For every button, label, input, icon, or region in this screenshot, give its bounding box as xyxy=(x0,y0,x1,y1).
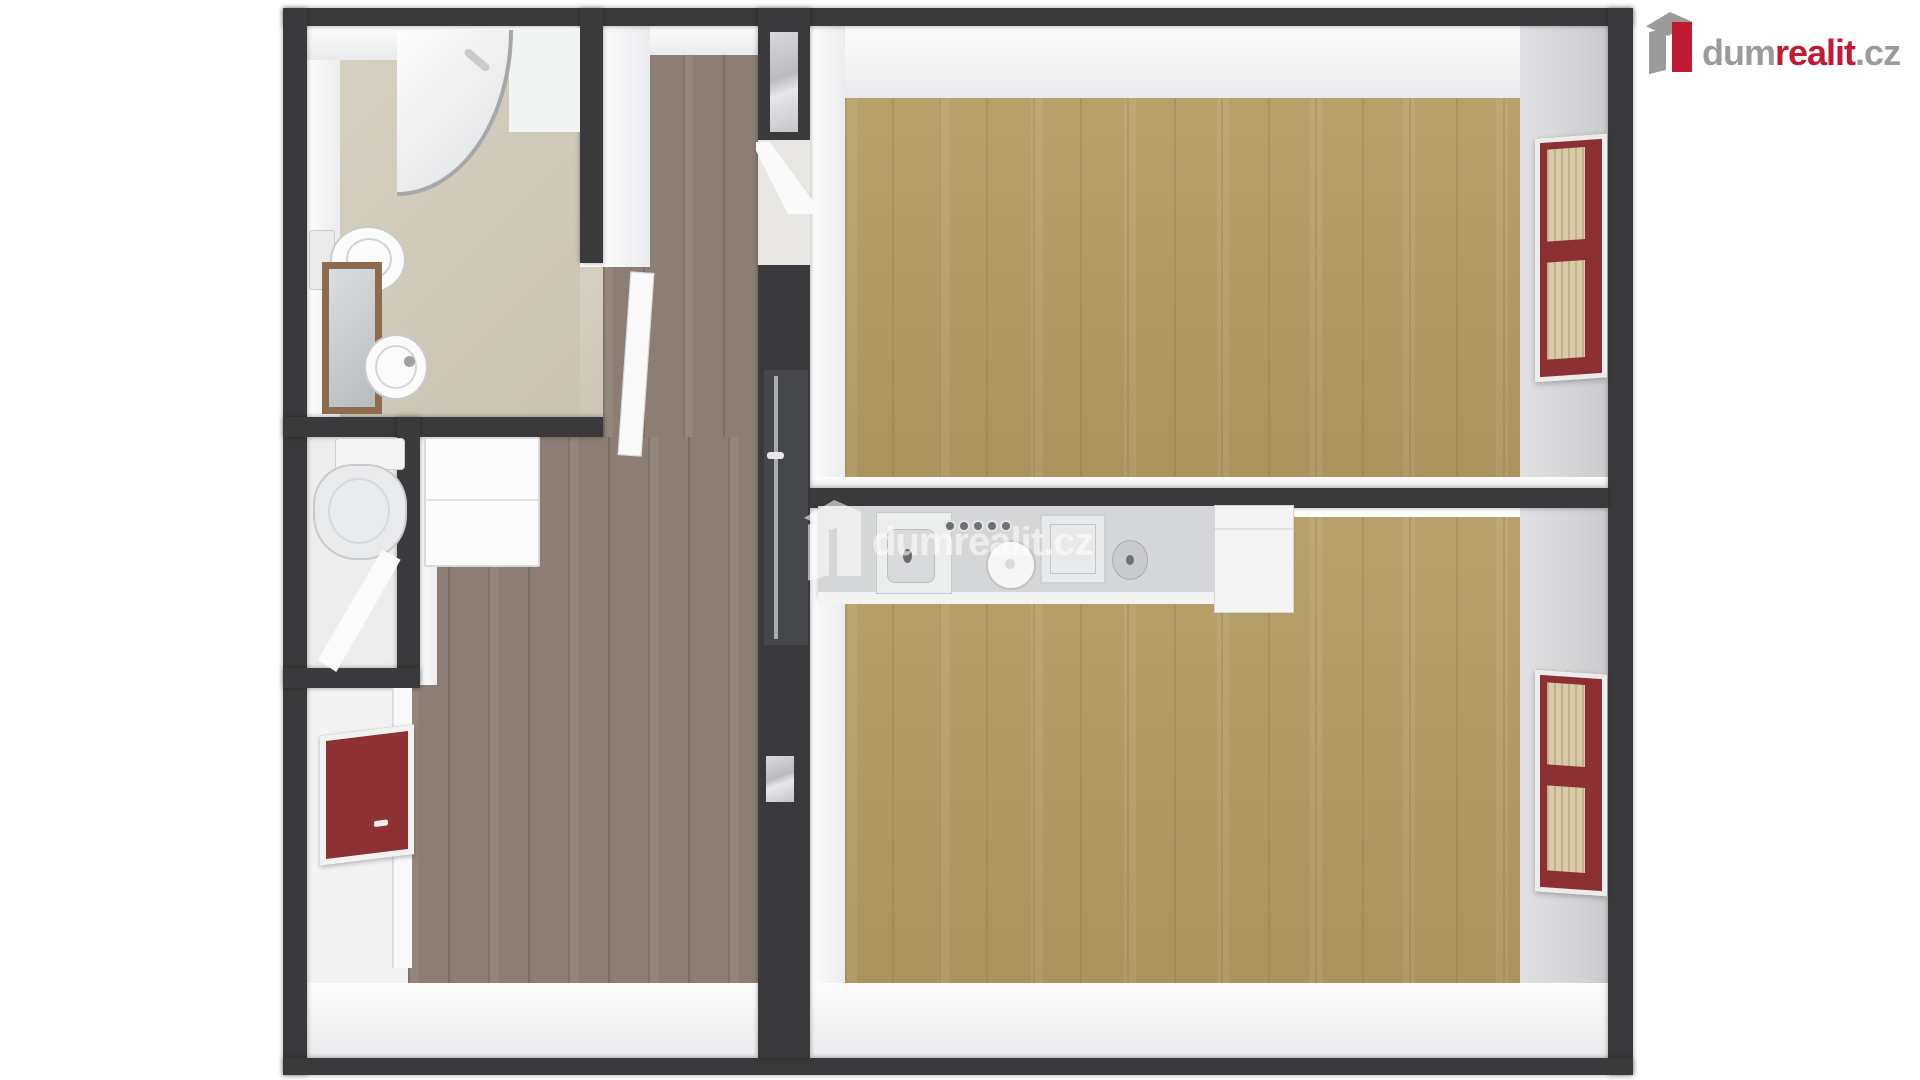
entry-window-latch xyxy=(374,819,388,827)
logo-building-icon xyxy=(1644,10,1698,74)
living-room-floor xyxy=(845,98,1520,477)
bedroom-window xyxy=(1535,669,1607,896)
wc-south-wall xyxy=(283,668,420,688)
wood-framed-mirror xyxy=(322,262,382,414)
glazed-door-glass-strip xyxy=(774,376,778,639)
watermark-icon-left-slab xyxy=(808,519,829,580)
outer-wall-top xyxy=(283,8,1633,26)
watermark-icon-right-slab xyxy=(837,512,861,576)
outer-wall-bottom xyxy=(283,1058,1633,1075)
logo-text-dum: dum xyxy=(1702,32,1775,73)
logo-icon-right-slab xyxy=(1672,22,1692,72)
bathroom-south-wall xyxy=(283,417,603,437)
outer-wall-right xyxy=(1608,8,1633,1075)
logo-text-cz: .cz xyxy=(1855,32,1900,73)
fridge xyxy=(1214,505,1294,613)
washbasin-inner xyxy=(375,345,417,389)
bottom-wall-face xyxy=(307,983,1608,1058)
washbasin-faucet xyxy=(404,356,415,367)
watermark-text: dumrealit.cz xyxy=(872,520,1093,565)
wc-toilet-bowl xyxy=(313,464,407,560)
logo-text-realit: realit xyxy=(1775,32,1855,73)
logo-text: dumrealit.cz xyxy=(1702,32,1900,74)
outer-wall-left xyxy=(283,8,307,1075)
logo-icon-left-slab xyxy=(1649,28,1666,74)
living-room-top-wall-face xyxy=(845,26,1520,98)
shower-alcove xyxy=(509,28,580,132)
bathroom-east-wall xyxy=(580,8,603,263)
living-room-window xyxy=(1535,133,1607,382)
hall-cabinet-divider-line xyxy=(426,499,538,501)
dumrealit-logo: dumrealit.cz xyxy=(1644,10,1914,74)
entry-window-frame xyxy=(320,724,414,866)
washbasin xyxy=(364,334,428,400)
watermark: dumrealit.cz xyxy=(800,498,1140,590)
corridor-west-wall-face xyxy=(600,26,650,267)
fridge-door-line xyxy=(1215,528,1293,530)
bedroom-window-lower-pane xyxy=(1547,785,1585,873)
glazed-door-handle xyxy=(767,452,784,459)
floorplan-canvas: dumrealit.cz dumrealit.cz xyxy=(0,0,1920,1080)
wc-toilet-seat xyxy=(328,478,390,544)
living-room-window-upper-pane xyxy=(1547,147,1585,242)
divider-glazed-sidelight xyxy=(770,32,798,132)
bedroom-window-upper-pane xyxy=(1547,682,1585,767)
hall-mirror xyxy=(766,756,794,802)
hall-cabinet xyxy=(424,437,540,567)
watermark-building-icon xyxy=(800,498,870,590)
living-room-window-lower-pane xyxy=(1547,260,1585,360)
